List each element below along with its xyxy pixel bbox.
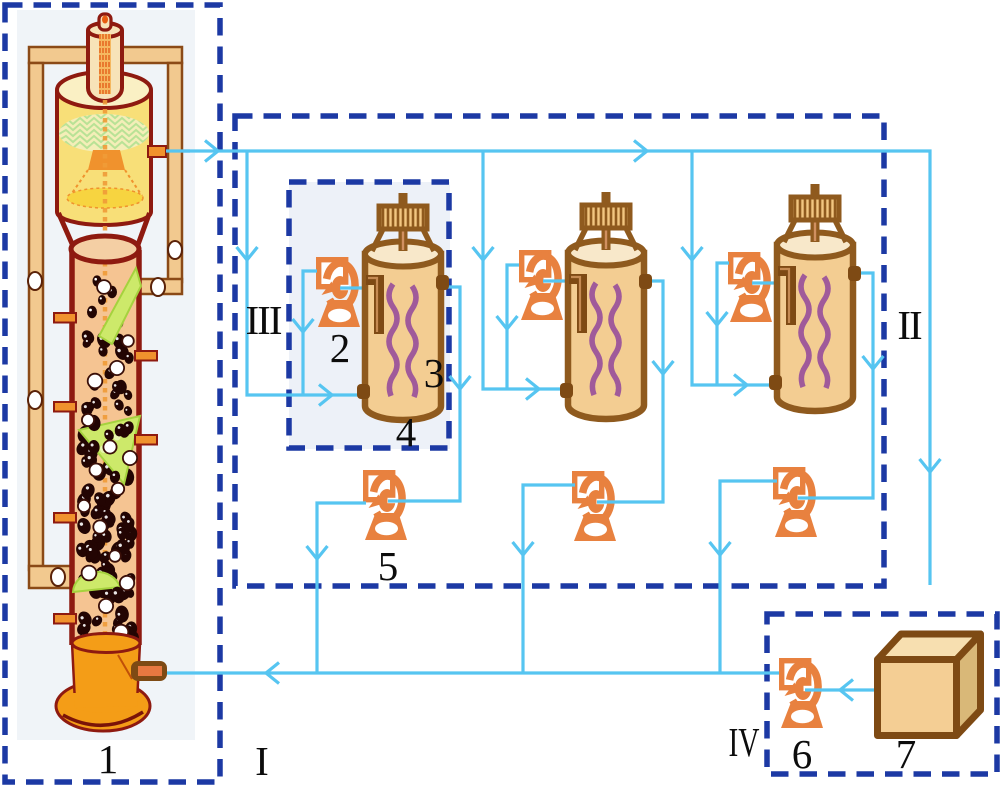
- svg-text:7: 7: [896, 731, 917, 777]
- svg-text:4: 4: [396, 409, 417, 455]
- svg-text:2: 2: [330, 325, 351, 371]
- svg-text:III: III: [246, 297, 282, 343]
- svg-text:IV: IV: [729, 719, 760, 765]
- svg-text:3: 3: [424, 350, 445, 396]
- svg-text:II: II: [897, 302, 922, 348]
- svg-text:6: 6: [792, 731, 813, 777]
- svg-text:5: 5: [378, 543, 399, 589]
- svg-text:1: 1: [98, 736, 119, 782]
- svg-text:I: I: [255, 738, 269, 784]
